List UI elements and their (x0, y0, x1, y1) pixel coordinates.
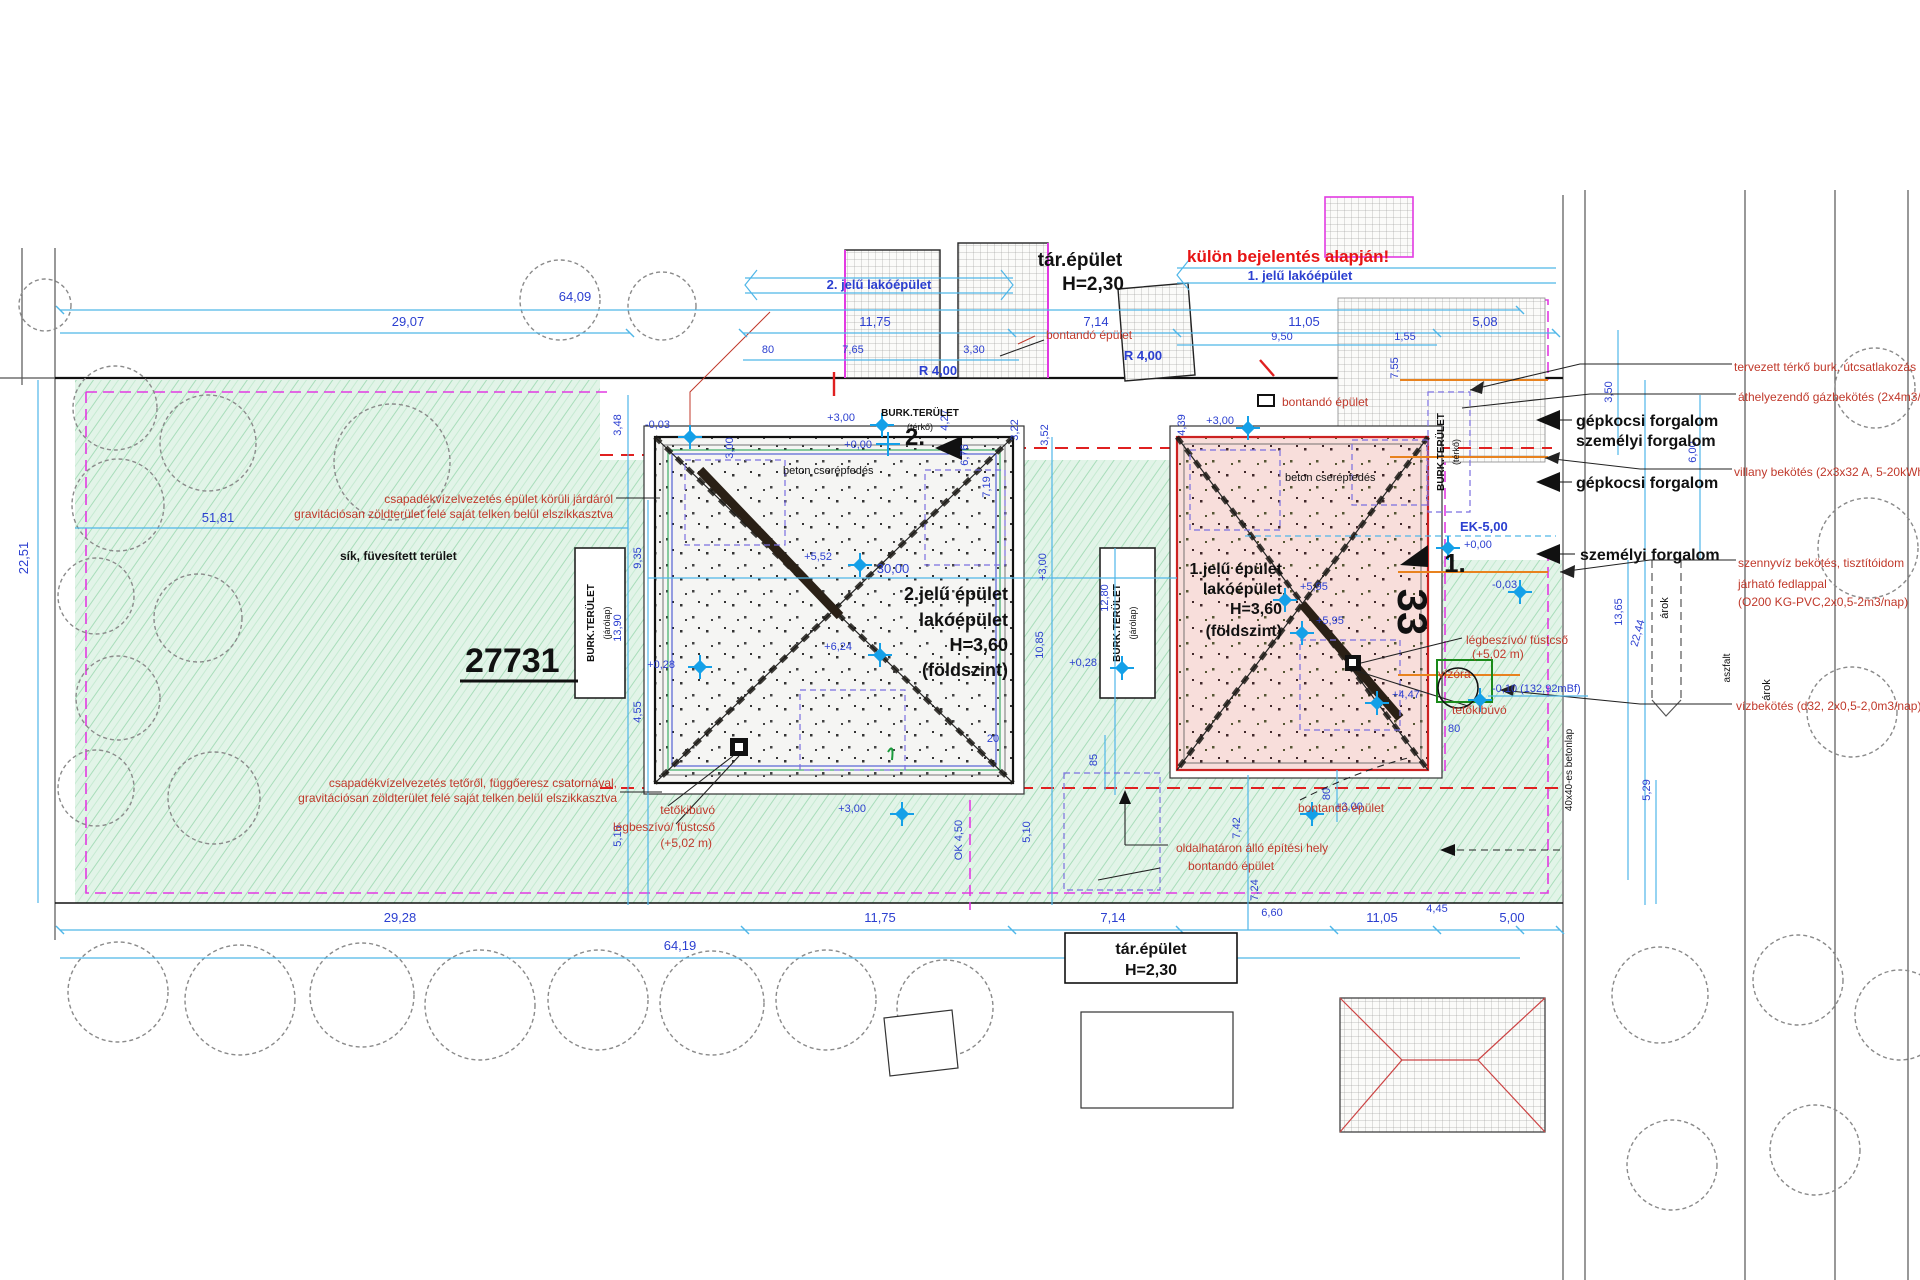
dim-1-55: 1,55 (1394, 331, 1415, 343)
note1-line1: csapadékvízelvezetés épület körüli járdá… (384, 492, 613, 506)
water-meter-label: vízóra (1438, 667, 1471, 681)
dim-20: 20 (987, 733, 999, 745)
stormwater-note-2: csapadékvízelvezetés tetőről, függőeresz… (298, 776, 662, 805)
dim-12-80: 12,80 (1099, 584, 1111, 612)
dim-11-75-bottom: 11,75 (864, 910, 896, 925)
dim-4-39: 4,39 (1176, 414, 1188, 435)
dim-r4-right: R 4,00 (1124, 348, 1162, 363)
bottom-structures (884, 998, 1545, 1132)
elev-3-00-rot: +3,00 (1037, 553, 1049, 581)
dim-3-52: 3,52 (1039, 424, 1051, 445)
tree-icon (185, 945, 295, 1055)
dim-29-28: 29,28 (384, 910, 417, 925)
burk-jarolap-label-2: BURK.TERÜLET (1110, 584, 1123, 662)
dim-85: 85 (1088, 754, 1100, 766)
tar-epulet-bottom-box: tár.épület H=2,30 (1065, 933, 1237, 983)
dim-13-65: 13,65 (1613, 598, 1625, 626)
dim-30-00: 30,00 (877, 561, 910, 576)
tree-icon (548, 950, 648, 1050)
b2-title-1: 2.jelű épület (904, 584, 1008, 604)
b2-vent-height: (+5,02 m) (660, 836, 712, 850)
traffic-label-1: gépkocsi forgalom (1576, 413, 1718, 430)
dim-7-65: 7,65 (842, 344, 863, 356)
dim-7-19: 7,19 (981, 476, 993, 497)
dim-total-top: 64,09 (559, 289, 592, 304)
b1-vent-height: (+5,02 m) (1472, 647, 1524, 661)
dim-3-22: 3,22 (1009, 419, 1021, 440)
utility-label-szennyviz-3: (O200 KG-PVC,2x0,5-2m3/nap) (1738, 595, 1908, 609)
banner-label-b1: 1. jelű lakóépület (1248, 268, 1353, 283)
dim-6-60: 6,60 (1261, 907, 1282, 919)
dim-13-90: 13,90 (612, 614, 624, 642)
concrete-slab-label: 40x40-es betonlap (1564, 728, 1575, 811)
dim-4-45: 4,45 (1426, 903, 1447, 915)
dim-22-51: 22,51 (16, 542, 31, 575)
dim-3-48: 3,48 (612, 414, 624, 435)
demolish-label-b1: bontandó épület (1298, 801, 1385, 815)
tree-icon (19, 279, 71, 331)
roof-hatch-inner (735, 743, 743, 751)
dim-3-30: 3,30 (963, 344, 984, 356)
burk-terko-right-1: BURK.TERÜLET (1434, 413, 1447, 491)
dim-51-81: 51,81 (202, 510, 235, 525)
elev-4-47: +4,47 (1392, 689, 1420, 701)
utility-label-szennyviz-2: járható fedlappal (1737, 577, 1827, 591)
dim-5-00: 5,00 (1499, 910, 1524, 925)
tree-icon (1818, 498, 1918, 598)
b2-vent-label: légbeszívó/ füstcső (613, 820, 715, 834)
burk-terko-right-2: (térkő) (1451, 439, 1461, 465)
b1-title-1: 1.jelű épület (1190, 561, 1283, 578)
tree-icon (1612, 947, 1708, 1043)
house-number-33: 33 (1389, 589, 1436, 636)
dim-11-05-top: 11,05 (1288, 314, 1320, 329)
lawn-label: sík, füvesített terület (340, 549, 457, 563)
parcel-number: 27731 (465, 642, 560, 680)
traffic-label-3: gépkocsi forgalom (1576, 475, 1718, 492)
dim-11-05-bottom: 11,05 (1366, 910, 1398, 925)
side-boundary-note: oldalhatáron álló építési hely (1176, 841, 1328, 855)
dim-7-42: 7,42 (1231, 817, 1243, 838)
dim-5-08: 5,08 (1472, 314, 1497, 329)
b1-title-2: lakóépület (1203, 581, 1283, 598)
elev-3-00-bl: +3,00 (838, 803, 866, 815)
b2-title-2: lakóépület (919, 610, 1008, 630)
elev-minus-0-03-right: -0,03 (1492, 579, 1517, 591)
dim-ek-5-00: EK-5,00 (1460, 519, 1508, 534)
elev-minus-0-10: -0,10 (132,92mBf) (1492, 683, 1581, 695)
site-plan-canvas: BURK.TERÜLET (járólap) BURK.TERÜLET (jár… (0, 0, 1920, 1280)
b1-roof-label: beton cserépfedés (1285, 472, 1376, 484)
burk-terko-top-1: BURK.TERÜLET (881, 406, 959, 419)
note2-line1: csapadékvízelvezetés tetőről, függőeresz… (329, 776, 617, 790)
b1-vent-label: légbeszívó/ füstcső (1466, 633, 1568, 647)
dim-3-00: 3,00 (724, 437, 736, 458)
dim-29-07: 29,07 (392, 314, 425, 329)
tree-icon (1753, 935, 1843, 1025)
demolish-label-top: bontandó épület (1046, 328, 1133, 342)
tree-icon (1855, 970, 1920, 1060)
vent-stack-inner (1349, 659, 1356, 666)
note1-line2: gravitációsan zöldterület felé saját tel… (294, 507, 613, 521)
tree-icon (1627, 1120, 1717, 1210)
elev-6-24: +6,24 (824, 641, 852, 653)
tree-icon (425, 950, 535, 1060)
traffic-label-4: személyi forgalom (1580, 547, 1720, 564)
ditch-label-2: árok (1761, 679, 1773, 701)
banner-label-b2: 2. jelű lakóépület (827, 277, 932, 292)
b2-roof-hatch-label: tetőkibúvó (660, 803, 715, 817)
dim-5-29: 5,29 (1641, 779, 1653, 800)
tar-epulet-bottom-1: tár.épület (1115, 941, 1187, 958)
ditch-label-1: árok (1659, 597, 1671, 619)
elev-5-95-b: +5,95 (1316, 615, 1344, 627)
dim-7-14-top: 7,14 (1083, 314, 1108, 329)
elev-3-00-b1: +3,00 (1206, 415, 1234, 427)
b2-title-3: H=3,60 (949, 635, 1008, 655)
pavement-box-b1: BURK.TERÜLET (járólap) (1100, 548, 1155, 698)
burk-jarolap-sublabel-1: (járólap) (602, 606, 612, 639)
tar-epulet-top: tár.épület (1038, 250, 1123, 271)
elev-0-28-right: +0,28 (1069, 657, 1097, 669)
tree-icon (660, 951, 764, 1055)
elev-0-00-top: +0,00 (844, 439, 872, 451)
kulon-bejelentes: külön bejelentés alapján! (1187, 247, 1389, 266)
dim-9-50: 9,50 (1271, 331, 1292, 343)
tar-epulet-bottom-2: H=2,30 (1125, 962, 1177, 979)
burk-terko-top-2: (térkő) (907, 422, 933, 432)
tree-icon (68, 942, 168, 1042)
dim-10-85: 10,85 (1034, 631, 1046, 659)
demolish-label-bottom: bontandó épület (1188, 859, 1275, 873)
traffic-label-2: személyi forgalom (1576, 433, 1716, 450)
asphalt-label: aszfalt (1722, 653, 1733, 682)
elev-5-95-a: +5,95 (1300, 581, 1328, 593)
utility-label-gaz: áthelyezendő gázbekötés (2x4m3/h) (1738, 390, 1920, 404)
dim-80-mid: 80 (1321, 788, 1333, 800)
dim-ok-4-50: OK 4,50 (953, 820, 965, 860)
dim-r4-left: R 4,00 (919, 363, 957, 378)
tree-icon (628, 272, 696, 340)
elev-5-52: +5,52 (804, 551, 832, 563)
tree-icon (776, 950, 876, 1050)
tar-epulet-top-h: H=2,30 (1062, 274, 1124, 295)
elev-0-00-right: +0,00 (1464, 539, 1492, 551)
b2-title-4: (földszint) (922, 660, 1008, 680)
tree-icon (1770, 1105, 1860, 1195)
demolish-label-right: bontandó épület (1282, 395, 1369, 409)
demolish-symbol (1258, 395, 1274, 406)
elev-0-28-left: +0,28 (647, 659, 675, 671)
burk-jarolap-sublabel-2: (járólap) (1128, 606, 1138, 639)
utility-label-villany: villany bekötés (2x3x32 A, 5-20kWh) (1734, 465, 1920, 479)
b1-title-3: H=3,60 (1230, 601, 1282, 618)
utility-label-szennyviz-1: szennyvíz bekötés, tisztítóidom (1738, 556, 1904, 570)
elev-minus-0-03: -0,03 (645, 419, 670, 431)
dim-3-50: 3,50 (1603, 381, 1615, 402)
dim-11-75-top: 11,75 (859, 314, 891, 329)
building-1-marker: 1. (1444, 548, 1466, 578)
dim-80-top: 80 (762, 344, 774, 356)
dim-7-55: 7,55 (1389, 357, 1401, 378)
elev-3-00-b2: +3,00 (827, 412, 855, 424)
dim-7-14-bottom: 7,14 (1100, 910, 1125, 925)
dim-4-55: 4,55 (632, 701, 644, 722)
dim-64-19: 64,19 (664, 938, 697, 953)
utility-label-terko: tervezett térkő burk. útcsatlakozás (1734, 360, 1916, 374)
b1-roof-hatch-label: tetőkibúvó (1452, 703, 1507, 717)
b2-roof-label: beton cserépfedés (783, 465, 874, 477)
dim-7-24: 7,24 (1249, 879, 1261, 900)
burk-jarolap-label-1: BURK.TERÜLET (584, 584, 597, 662)
dim-5-10-mid: 5,10 (1021, 821, 1033, 842)
dim-80-right: 80 (1448, 723, 1460, 735)
dim-6-76: 6,76 (959, 444, 971, 465)
note2-line2: gravitációsan zöldterület felé saját tel… (298, 791, 617, 805)
b1-title-4: (földszint) (1206, 623, 1282, 640)
dim-9-35: 9,35 (632, 547, 644, 568)
